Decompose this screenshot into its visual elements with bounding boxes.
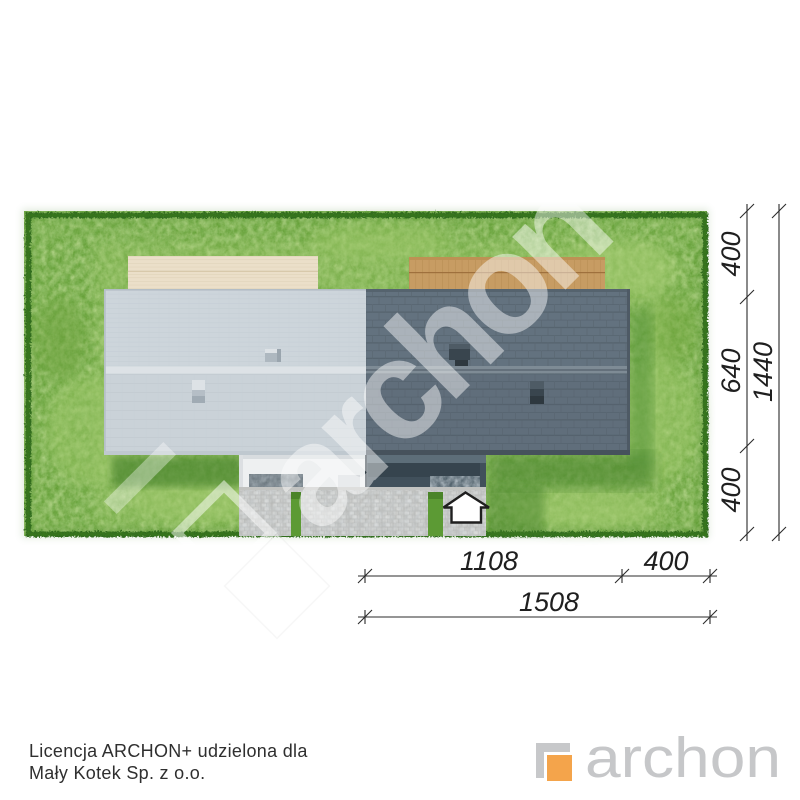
svg-text:Licencja ARCHON+ udzielona dla: Licencja ARCHON+ udzielona dla [29,741,308,761]
svg-text:640: 640 [716,348,746,393]
svg-text:400: 400 [716,231,746,276]
svg-text:Mały Kotek Sp. z o.o.: Mały Kotek Sp. z o.o. [29,763,205,783]
svg-text:archon: archon [585,726,781,790]
svg-text:1440: 1440 [748,342,778,402]
svg-text:1108: 1108 [460,546,518,576]
svg-text:400: 400 [643,546,688,576]
svg-text:400: 400 [716,467,746,512]
svg-text:1508: 1508 [519,587,579,617]
